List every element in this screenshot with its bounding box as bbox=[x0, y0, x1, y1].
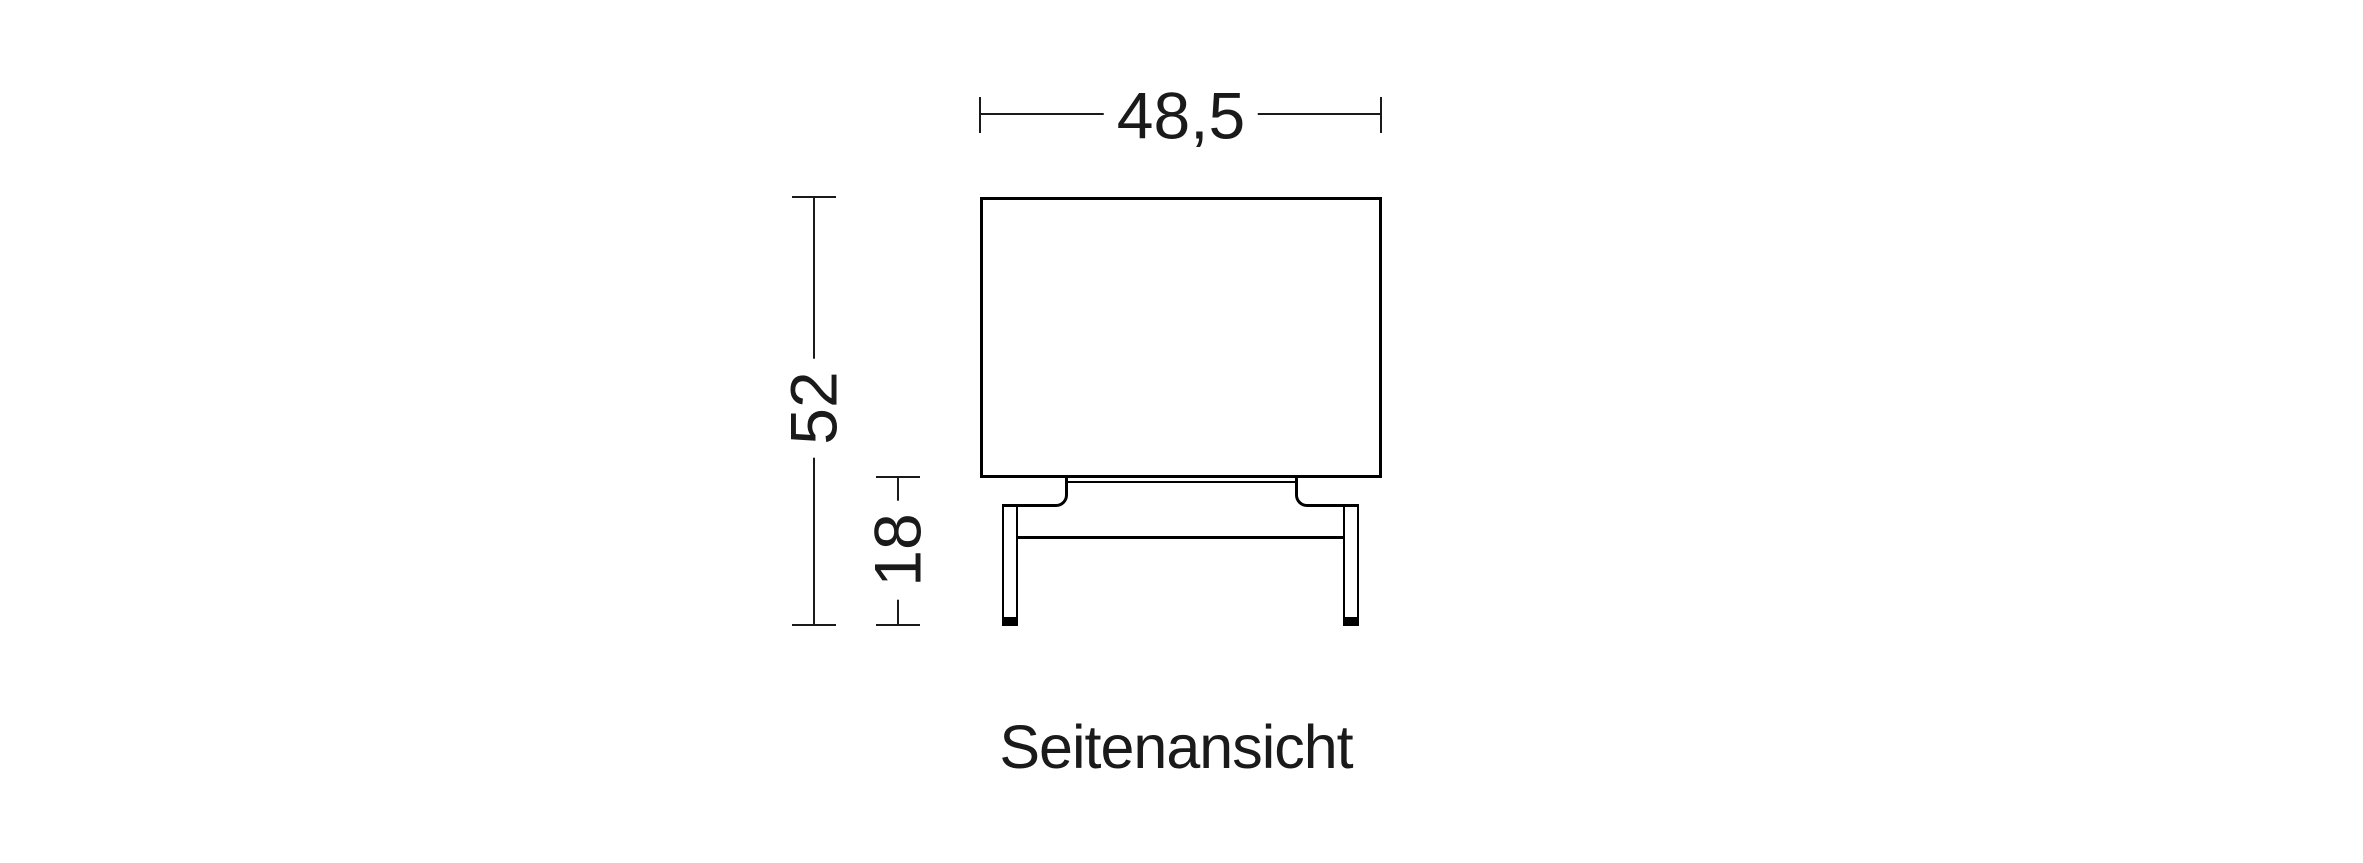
left-leg-foot bbox=[1002, 617, 1018, 626]
width-dimension-tick-right bbox=[1380, 97, 1382, 133]
leg-mount-bracket-right bbox=[1295, 478, 1359, 507]
width-dimension-tick-left bbox=[979, 97, 981, 133]
total-height-dimension-label: 52 bbox=[779, 358, 848, 457]
leg-height-dimension-label: 18 bbox=[863, 500, 932, 599]
cabinet-bottom-recess-line bbox=[1066, 481, 1297, 483]
right-leg bbox=[1343, 507, 1359, 619]
leg-height-dimension-tick-bottom bbox=[876, 624, 920, 626]
total-height-dimension-tick-bottom bbox=[792, 624, 836, 626]
width-dimension-label: 48,5 bbox=[1104, 81, 1258, 150]
leg-crossbar bbox=[1018, 536, 1343, 539]
leg-mount-bracket-left bbox=[1002, 478, 1068, 507]
left-leg bbox=[1002, 507, 1018, 619]
right-leg-foot bbox=[1343, 617, 1359, 626]
view-title: Seitenansicht bbox=[999, 712, 1352, 782]
total-height-dimension-tick-top bbox=[792, 196, 836, 198]
leg-height-dimension-tick-top bbox=[876, 476, 920, 478]
cabinet-body bbox=[980, 197, 1382, 478]
drawing-canvas: 48,5 52 18 Seitenansicht bbox=[0, 0, 2363, 863]
